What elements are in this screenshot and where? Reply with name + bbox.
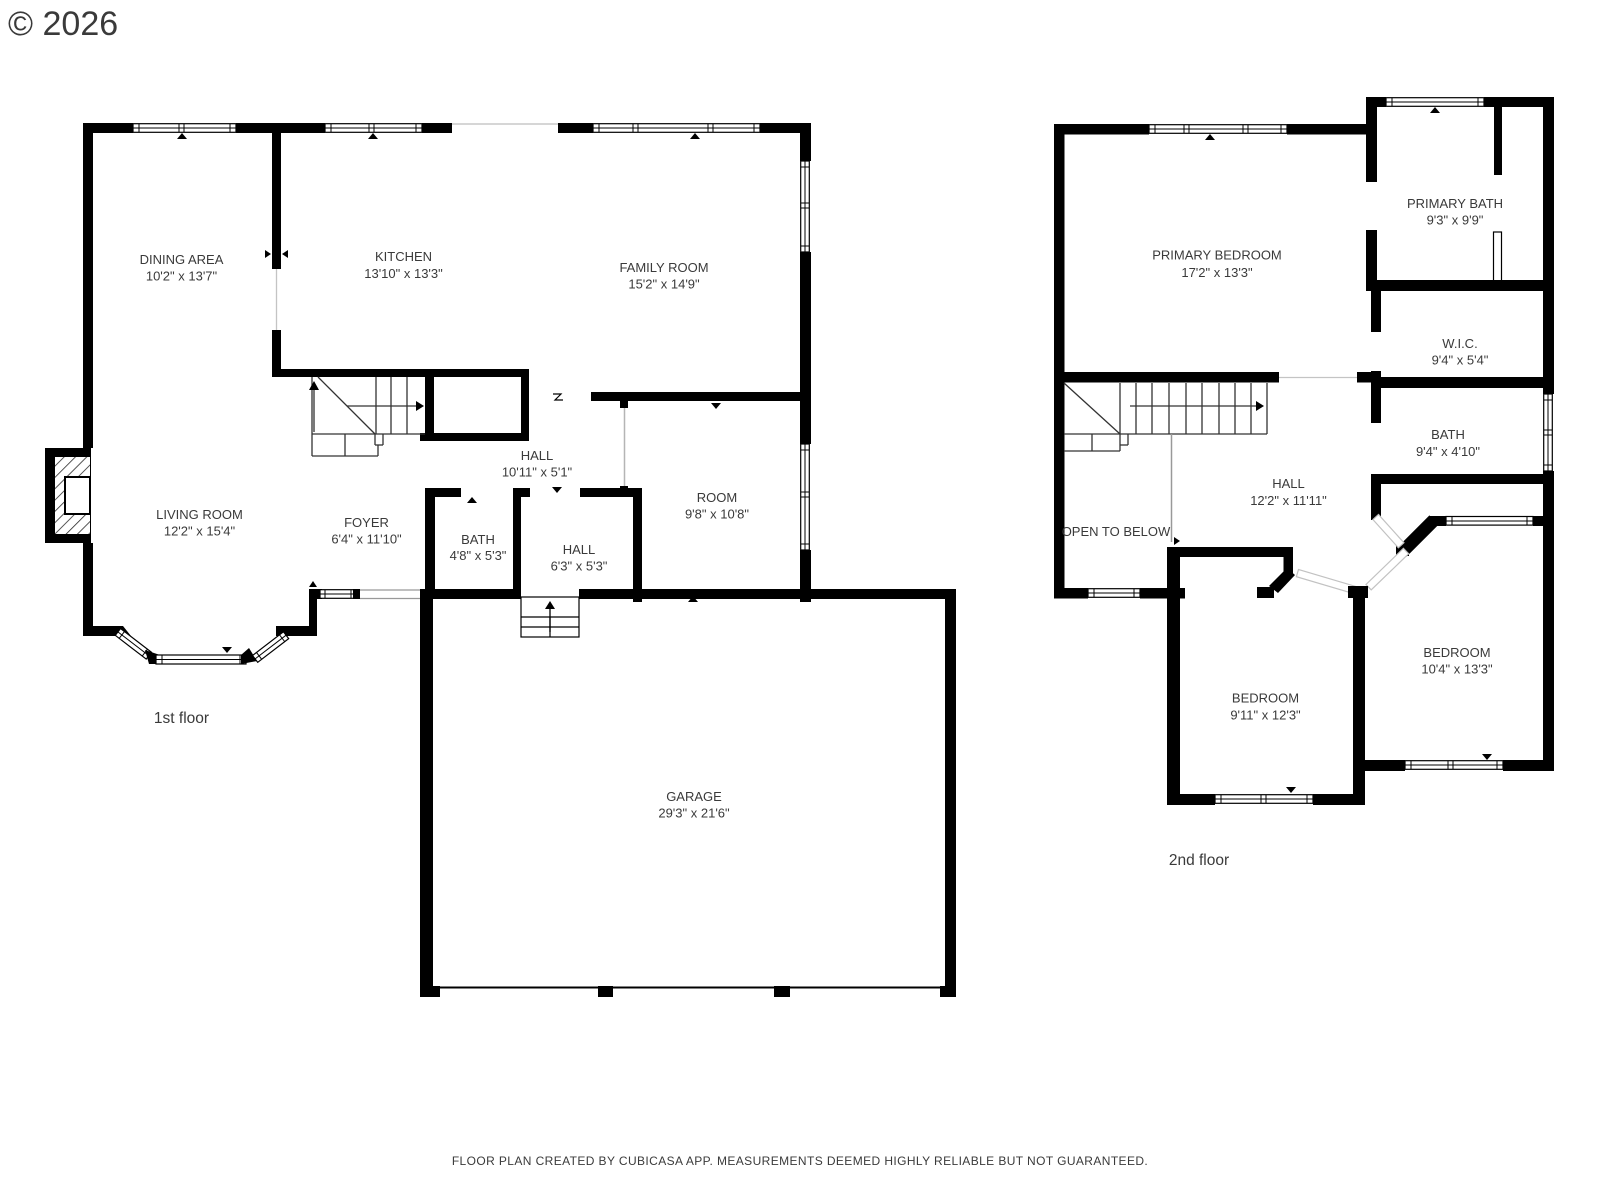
svg-text:13'10" x 13'3": 13'10" x 13'3" xyxy=(364,266,443,281)
svg-text:PRIMARY BEDROOM: PRIMARY BEDROOM xyxy=(1152,248,1282,263)
svg-text:2nd floor: 2nd floor xyxy=(1169,852,1229,869)
svg-text:FOYER: FOYER xyxy=(344,515,389,530)
svg-text:ROOM: ROOM xyxy=(697,490,737,505)
svg-text:BEDROOM: BEDROOM xyxy=(1232,691,1299,706)
svg-text:HALL: HALL xyxy=(521,448,554,463)
svg-text:PRIMARY BATH: PRIMARY BATH xyxy=(1407,196,1503,211)
svg-text:29'3" x 21'6": 29'3" x 21'6" xyxy=(658,806,730,821)
svg-text:9'3" x 9'9": 9'3" x 9'9" xyxy=(1427,213,1484,228)
svg-text:9'8" x 10'8": 9'8" x 10'8" xyxy=(685,507,749,522)
svg-text:10'4" x 13'3": 10'4" x 13'3" xyxy=(1421,662,1493,677)
svg-text:9'11" x 12'3": 9'11" x 12'3" xyxy=(1230,708,1301,723)
svg-text:BATH: BATH xyxy=(461,532,495,547)
svg-text:FLOOR PLAN CREATED BY CUBICASA: FLOOR PLAN CREATED BY CUBICASA APP. MEAS… xyxy=(452,1154,1148,1168)
svg-text:15'2" x 14'9": 15'2" x 14'9" xyxy=(628,277,700,292)
svg-text:HALL: HALL xyxy=(563,542,596,557)
svg-text:12'2" x 15'4": 12'2" x 15'4" xyxy=(164,524,236,539)
svg-text:17'2" x 13'3": 17'2" x 13'3" xyxy=(1181,265,1253,280)
svg-text:6'4" x 11'10": 6'4" x 11'10" xyxy=(331,532,402,547)
svg-text:9'4" x 4'10": 9'4" x 4'10" xyxy=(1416,444,1480,459)
svg-text:HALL: HALL xyxy=(1272,476,1305,491)
svg-text:10'11" x 5'1": 10'11" x 5'1" xyxy=(502,465,573,480)
svg-text:6'3" x 5'3": 6'3" x 5'3" xyxy=(551,559,608,574)
svg-text:OPEN TO BELOW: OPEN TO BELOW xyxy=(1062,524,1171,539)
svg-text:BEDROOM: BEDROOM xyxy=(1423,645,1490,660)
svg-text:KITCHEN: KITCHEN xyxy=(375,249,432,264)
svg-text:LIVING ROOM: LIVING ROOM xyxy=(156,507,243,522)
svg-text:© 2026: © 2026 xyxy=(8,5,118,43)
svg-text:DINING AREA: DINING AREA xyxy=(140,252,224,267)
svg-text:W.I.C.: W.I.C. xyxy=(1442,336,1477,351)
svg-text:10'2" x 13'7": 10'2" x 13'7" xyxy=(146,269,218,284)
svg-text:9'4" x 5'4": 9'4" x 5'4" xyxy=(1432,353,1489,368)
svg-text:4'8" x 5'3": 4'8" x 5'3" xyxy=(450,548,507,563)
svg-text:FAMILY ROOM: FAMILY ROOM xyxy=(619,260,708,275)
svg-text:BATH: BATH xyxy=(1431,427,1465,442)
svg-text:GARAGE: GARAGE xyxy=(666,789,722,804)
svg-text:12'2" x 11'11": 12'2" x 11'11" xyxy=(1250,493,1327,508)
svg-text:1st floor: 1st floor xyxy=(154,710,209,727)
